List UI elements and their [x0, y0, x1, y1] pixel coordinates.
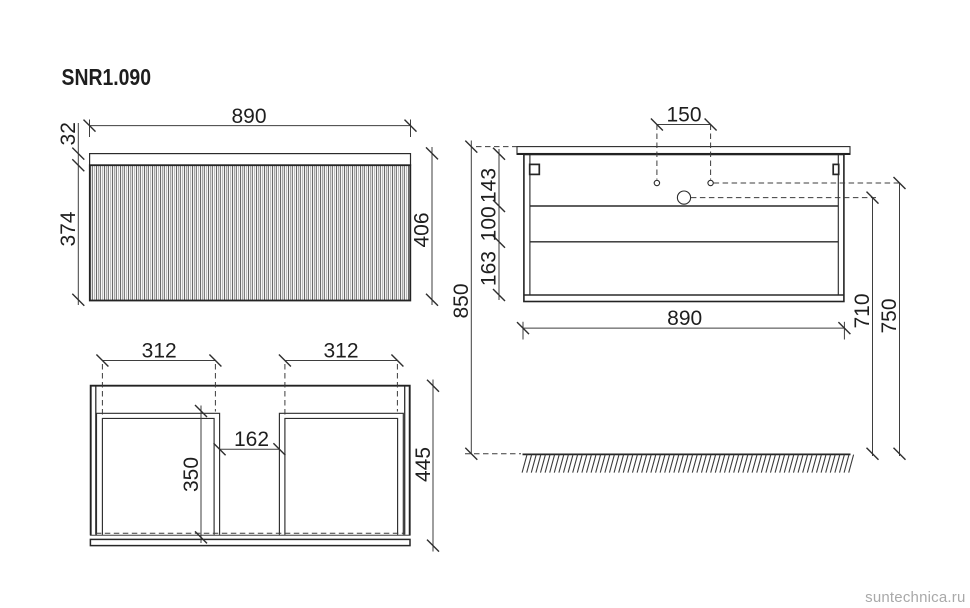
svg-text:890: 890: [231, 105, 266, 128]
svg-text:850: 850: [450, 283, 473, 318]
svg-text:162: 162: [234, 428, 269, 451]
svg-text:445: 445: [412, 447, 435, 482]
svg-text:406: 406: [411, 212, 434, 247]
svg-text:890: 890: [667, 307, 702, 330]
svg-text:32: 32: [57, 122, 80, 145]
svg-text:143: 143: [478, 168, 501, 203]
svg-text:SNR1.090: SNR1.090: [62, 64, 152, 90]
svg-text:710: 710: [851, 293, 874, 328]
svg-text:374: 374: [57, 211, 80, 246]
svg-text:150: 150: [666, 104, 701, 127]
svg-text:163: 163: [478, 251, 501, 286]
svg-text:suntechnica.ru: suntechnica.ru: [865, 589, 965, 606]
svg-text:750: 750: [878, 298, 901, 333]
svg-text:100: 100: [478, 206, 501, 241]
svg-text:312: 312: [142, 339, 177, 362]
svg-text:312: 312: [323, 339, 358, 362]
svg-text:350: 350: [180, 457, 203, 492]
